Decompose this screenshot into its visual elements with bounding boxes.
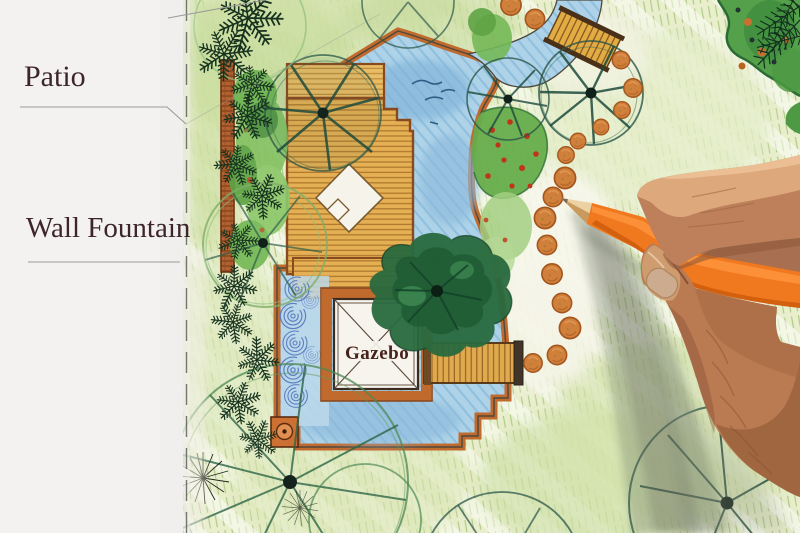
svg-text:Patio: Patio — [24, 60, 86, 93]
svg-text:Wall Fountain: Wall Fountain — [26, 212, 191, 244]
